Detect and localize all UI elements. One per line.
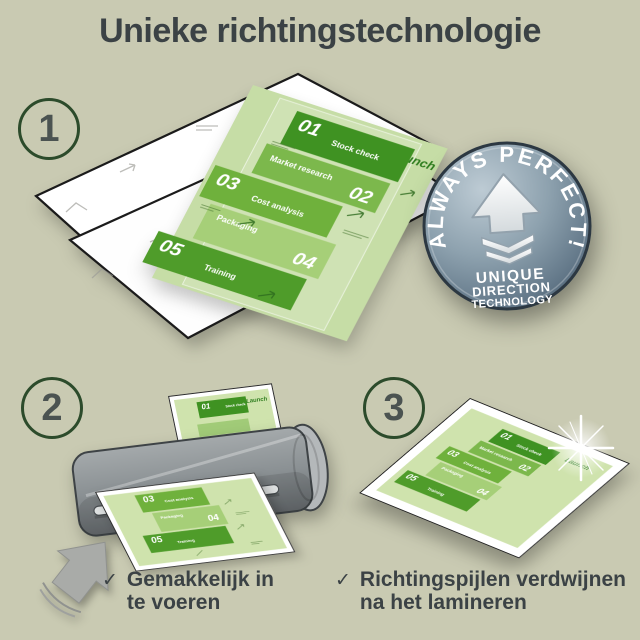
benefit-line: Gemakkelijk in — [127, 568, 274, 591]
benefit-easy-feed: ✓ Gemakkelijk in te voeren — [102, 568, 274, 614]
step-02-number: 02 — [516, 463, 532, 473]
benefit-arrows-disappear-text: Richtingspijlen verdwijnen na het lamine… — [360, 568, 626, 614]
benefit-line: na het lamineren — [360, 591, 527, 614]
step-3-number-label: 3 — [383, 387, 404, 430]
check-icon: ✓ — [102, 569, 118, 591]
sparkle-icon — [545, 412, 617, 484]
benefit-line: te voeren — [127, 591, 220, 614]
always-perfect-badge: ALWAYS PERFECT! UNIQUE DIRECTION TECHNOL… — [421, 140, 593, 312]
step-3-number: 3 — [363, 377, 425, 439]
benefit-arrows-disappear: ✓ Richtingspijlen verdwijnen na het lami… — [335, 568, 626, 614]
step-04-number: 04 — [289, 249, 319, 272]
benefit-line: Richtingspijlen verdwijnen — [360, 568, 626, 591]
check-icon: ✓ — [335, 569, 351, 591]
step-04-number: 04 — [474, 487, 490, 497]
step-02-number: 02 — [338, 179, 377, 208]
benefit-easy-feed-text: Gemakkelijk in te voeren — [127, 568, 274, 614]
product-infographic: Unieke richtingstechnologie 1 2 3 Launch… — [0, 0, 640, 640]
